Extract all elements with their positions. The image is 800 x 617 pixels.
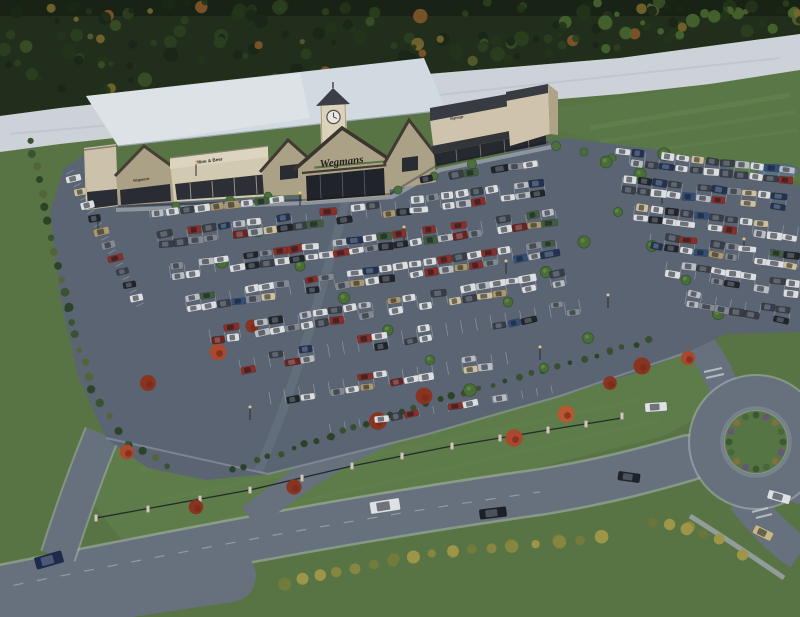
aerial-rendering: Wegmans Wine & Beer (0, 0, 800, 617)
scene-svg: Wegmans Wine & Beer (0, 0, 800, 617)
dusk-tint (0, 0, 800, 617)
